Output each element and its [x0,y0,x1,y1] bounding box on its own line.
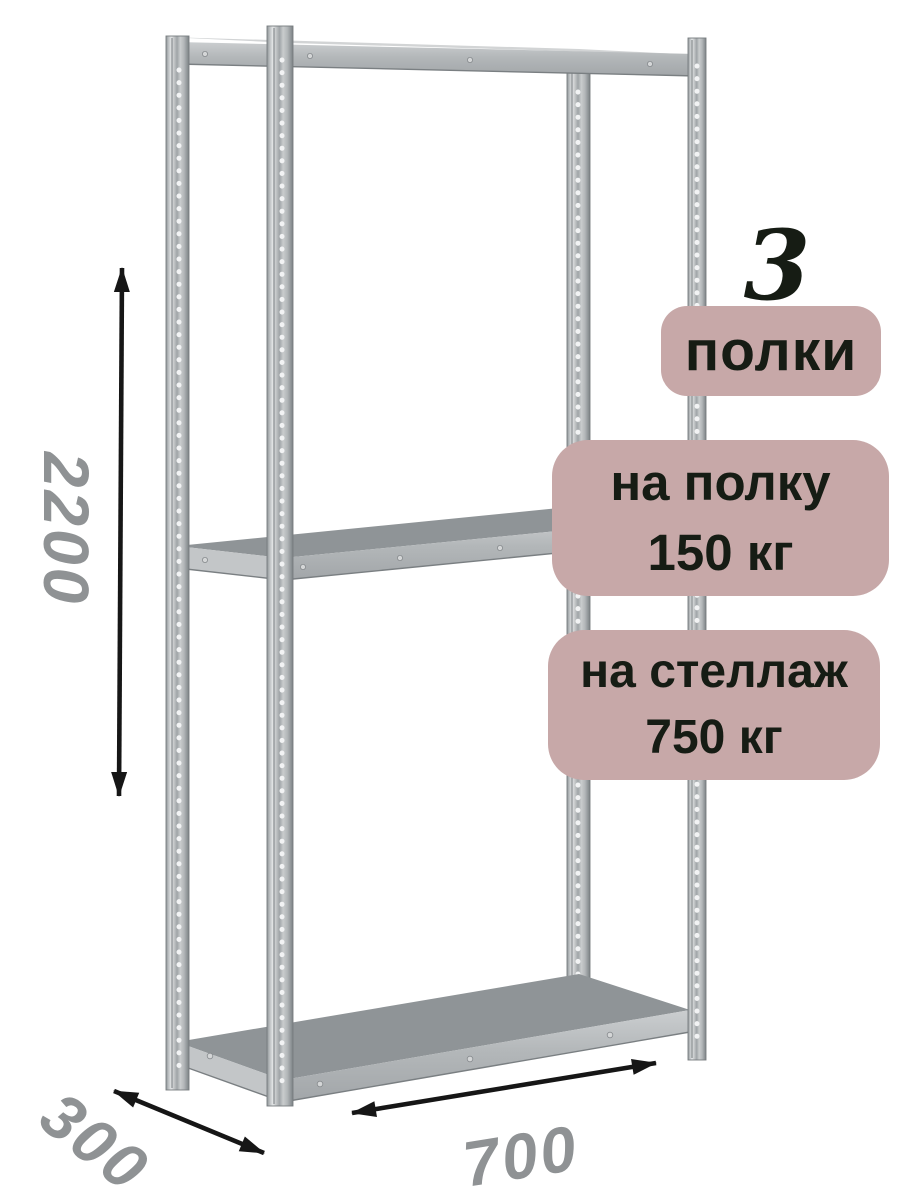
shelf-load-badge: на полку 150 кг [552,440,889,596]
product-image: 2200 300 700 3 полки на полку 150 кг на … [0,0,900,1200]
rack-post-back-left [166,36,189,1090]
shelf-load-line2: 150 кг [647,518,793,588]
shelf-count-badge: полки [661,306,881,396]
rack-load-line1: на стеллаж [580,639,848,705]
height-dimension-arrow [119,268,122,796]
rack-load-line2: 750 кг [645,705,782,771]
rack-post-front-left [267,26,293,1106]
height-dimension-label: 2200 [34,452,98,606]
width-dimension-label: 700 [459,1115,583,1196]
rack-load-badge: на стеллаж 750 кг [548,630,880,780]
shelving-rack-illustration [0,0,900,1200]
rack-shelf-bottom [177,974,690,1102]
rack-shelf-top [166,37,700,76]
shelf-count-label: полки [685,318,858,384]
shelf-count-number: 3 [744,218,811,314]
shelf-load-line1: на полку [610,448,830,518]
